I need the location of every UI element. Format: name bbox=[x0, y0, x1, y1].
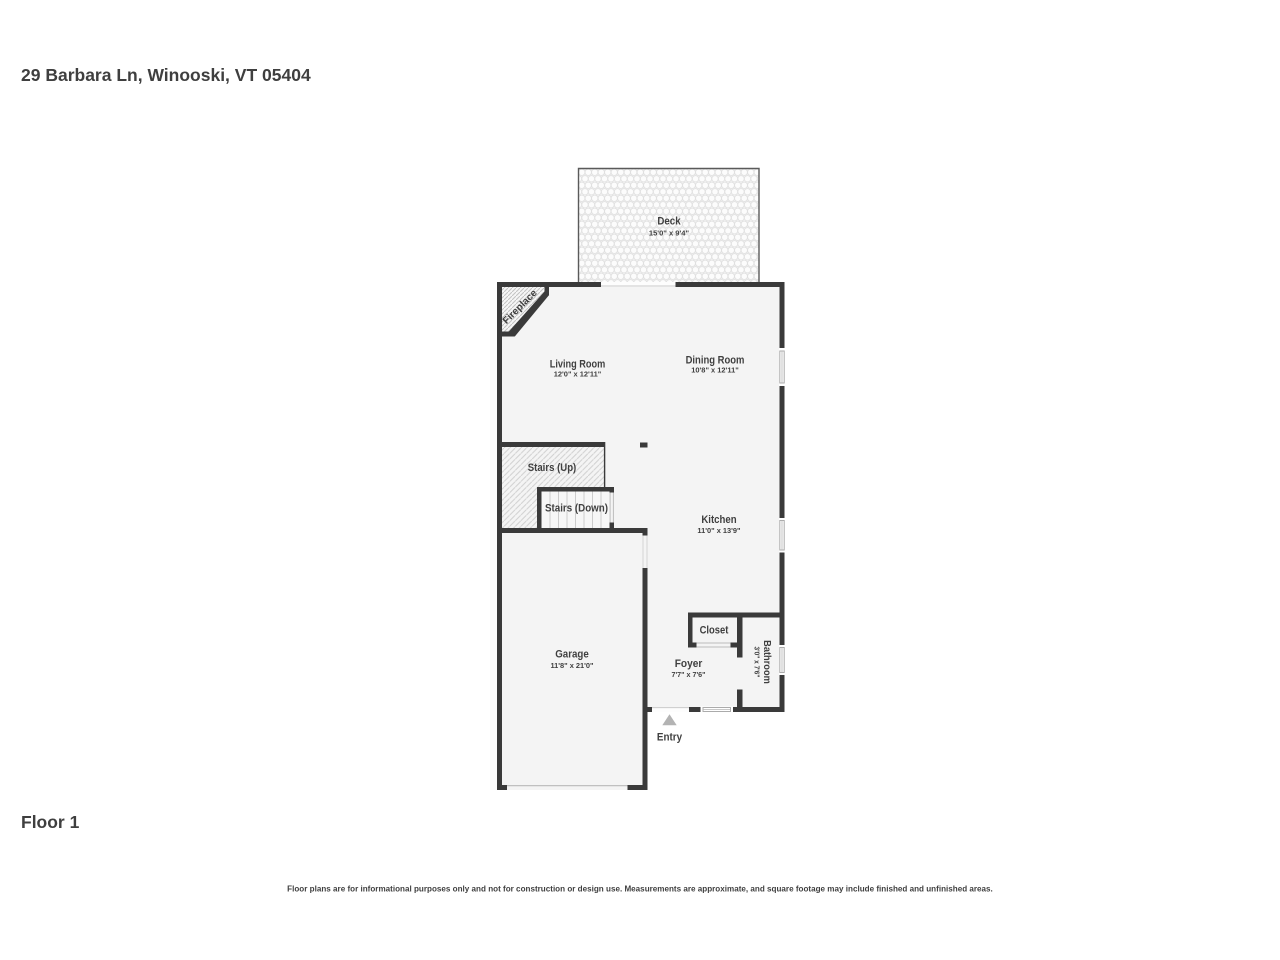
svg-text:Garage: Garage bbox=[555, 649, 589, 661]
svg-text:3'0" x 7'6": 3'0" x 7'6" bbox=[753, 647, 762, 678]
svg-text:Kitchen: Kitchen bbox=[701, 514, 736, 526]
svg-text:Bathroom: Bathroom bbox=[761, 640, 772, 684]
svg-text:Floor 1: Floor 1 bbox=[21, 812, 80, 832]
svg-text:Foyer: Foyer bbox=[675, 658, 703, 670]
svg-text:15'0" x 9'4": 15'0" x 9'4" bbox=[649, 229, 690, 238]
svg-text:Floor plans are for informatio: Floor plans are for informational purpos… bbox=[287, 885, 993, 894]
svg-text:12'0" x 12'11": 12'0" x 12'11" bbox=[554, 370, 602, 379]
svg-text:10'8" x 12'11": 10'8" x 12'11" bbox=[691, 366, 739, 375]
svg-text:Stairs (Down): Stairs (Down) bbox=[545, 503, 608, 515]
svg-text:Stairs (Up): Stairs (Up) bbox=[528, 462, 577, 474]
svg-text:Deck: Deck bbox=[657, 216, 681, 228]
svg-text:29 Barbara Ln, Winooski, VT 05: 29 Barbara Ln, Winooski, VT 05404 bbox=[21, 65, 311, 85]
svg-text:11'8" x 21'0": 11'8" x 21'0" bbox=[550, 661, 594, 670]
svg-text:Closet: Closet bbox=[700, 625, 729, 637]
svg-text:Entry: Entry bbox=[657, 732, 683, 744]
svg-text:11'0" x 13'9": 11'0" x 13'9" bbox=[697, 526, 741, 535]
svg-text:7'7" x 7'6": 7'7" x 7'6" bbox=[672, 670, 706, 679]
